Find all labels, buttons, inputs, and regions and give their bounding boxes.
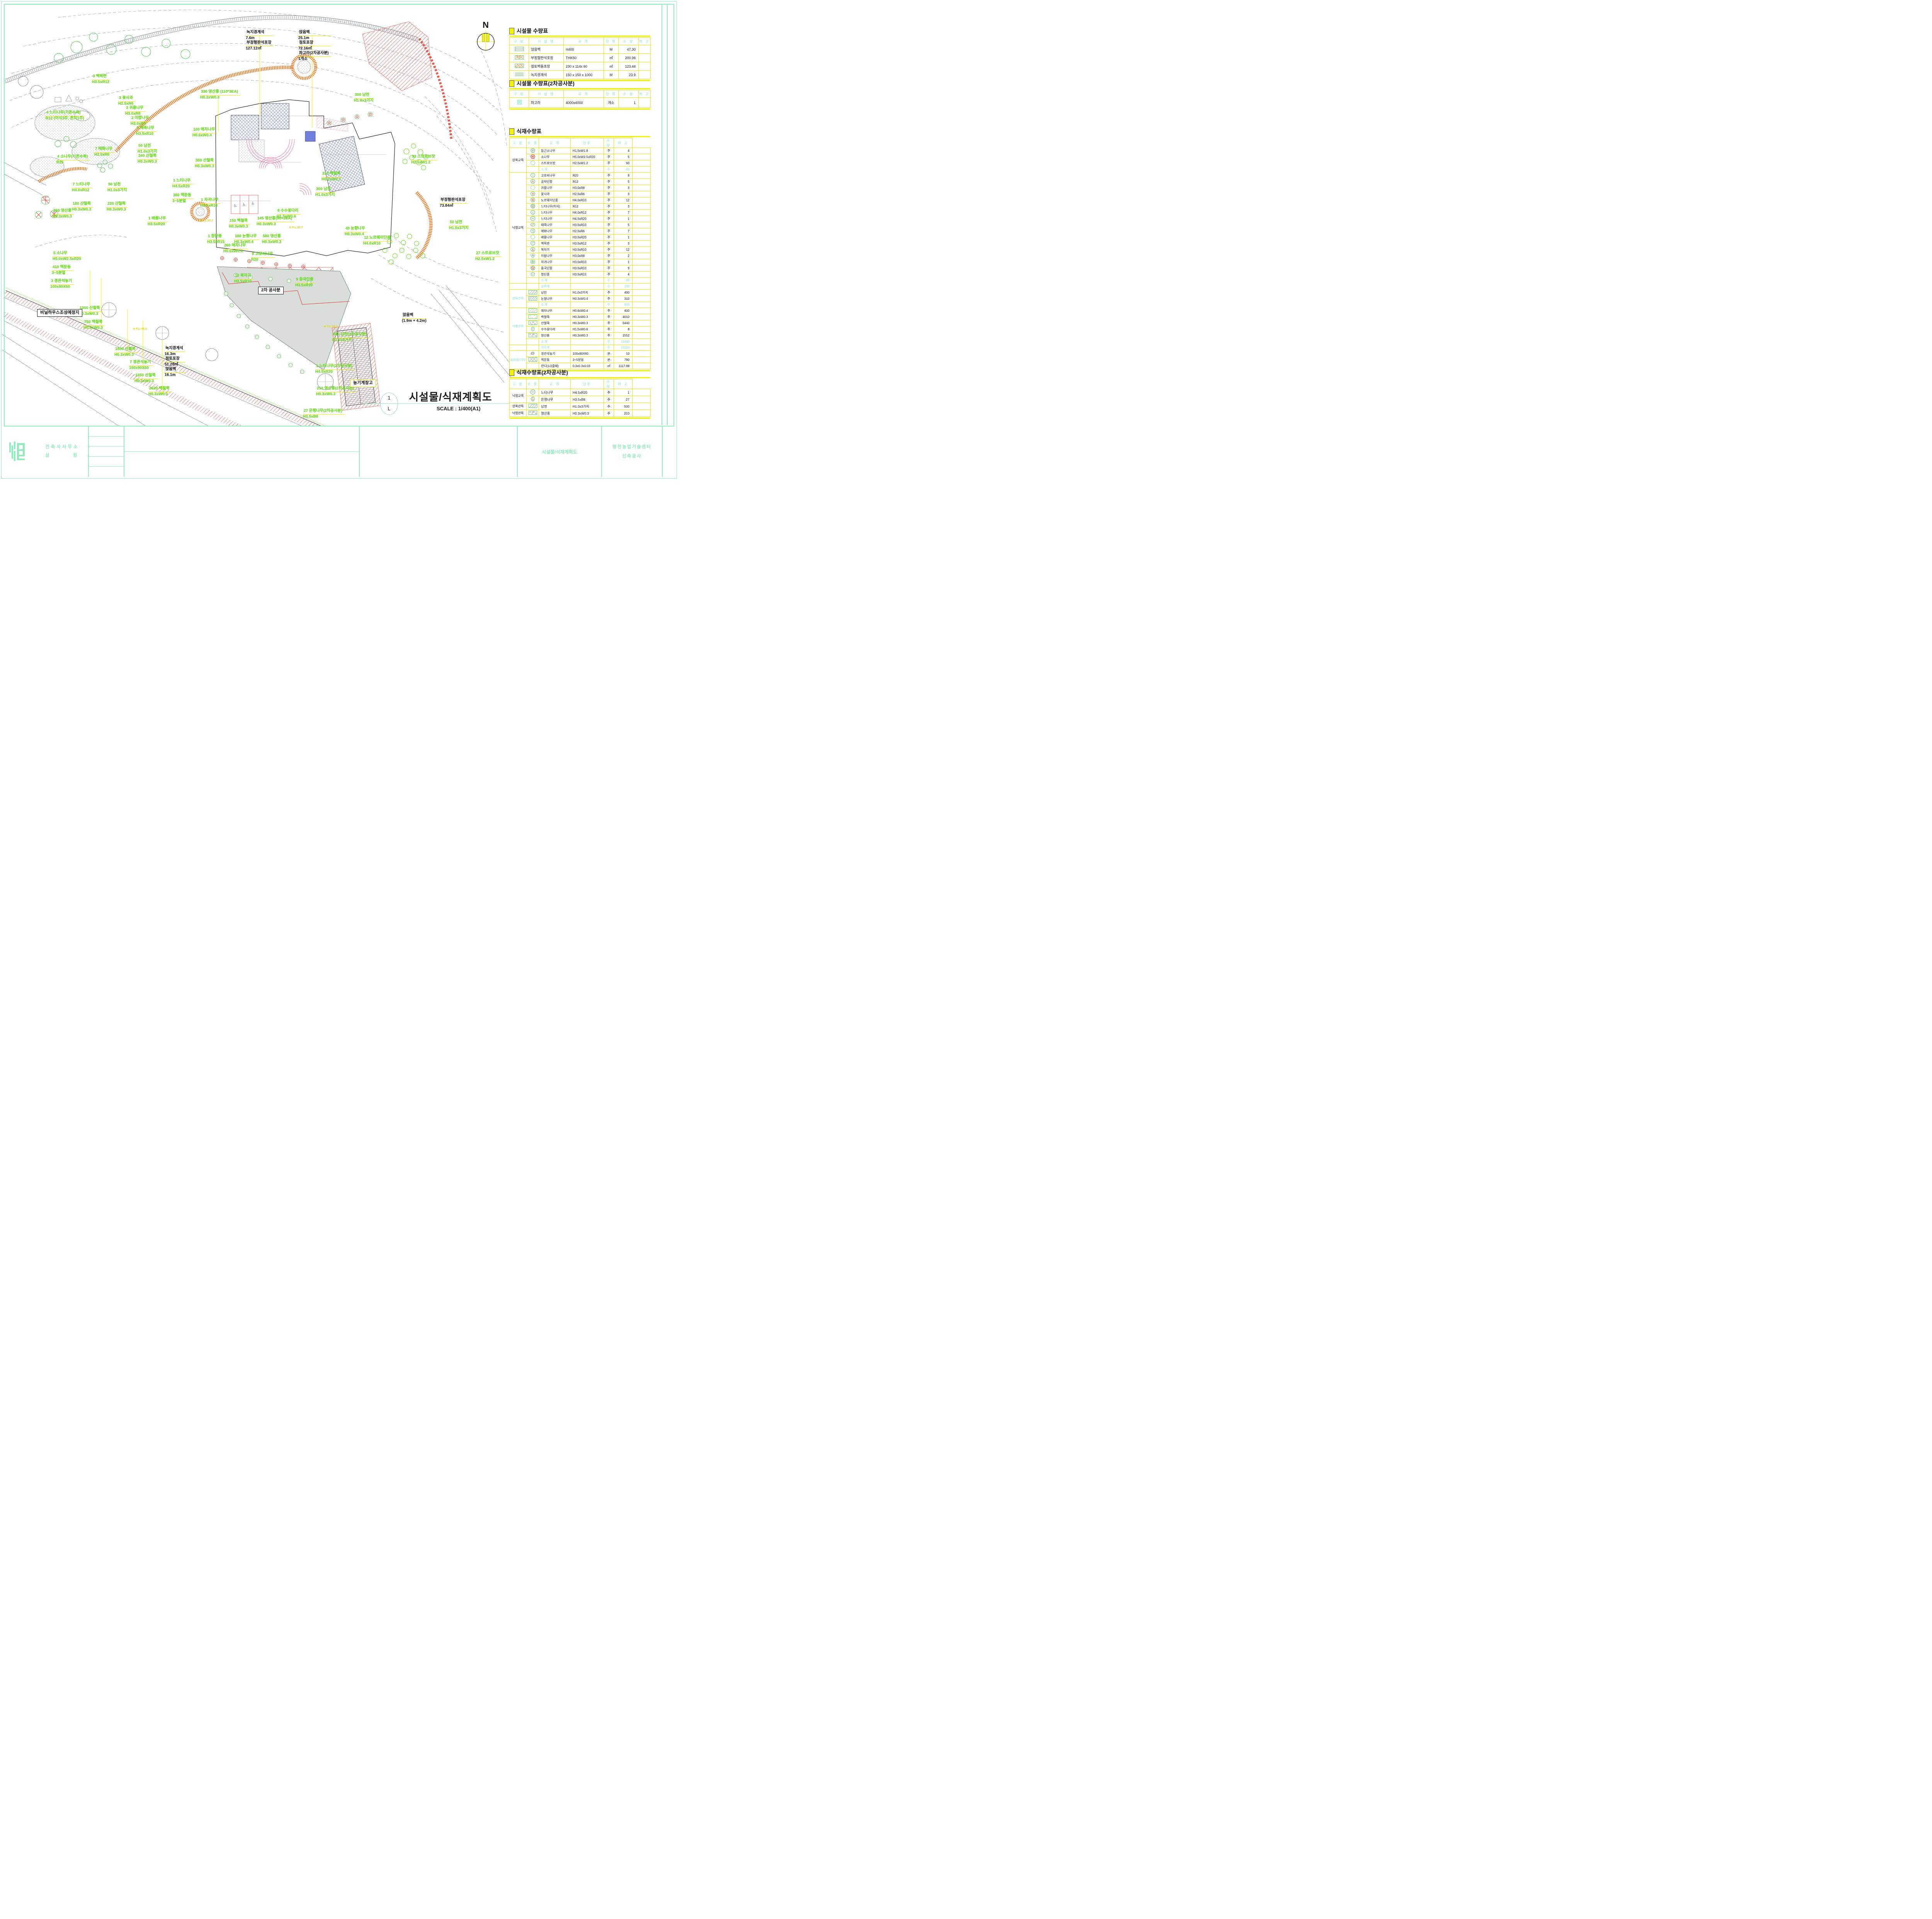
- table-row: 중국단풍H3.5xR10주9: [510, 265, 651, 271]
- table-row: 청단풍H3.5xR15주4: [510, 271, 651, 277]
- plant-label: 1350 산철쭉H0.3xW0.3: [134, 373, 158, 384]
- table-row: 백철쭉H0.3xW0.3주4010: [510, 314, 651, 320]
- table-row: 낙엽관목매자나무H0.6xW0.4주400: [510, 308, 651, 314]
- project-line2: 신축공사: [612, 452, 651, 461]
- table-row: 상록관목남천H1.0x3가지주490: [510, 289, 651, 296]
- plant-label: 앉음벽(1.9m + 4.2m): [402, 313, 427, 323]
- titleblock-project-name: 영천농업기술센터 신축공사: [601, 427, 662, 477]
- plant-label: 380 맥문동3~5분얼: [172, 193, 194, 204]
- notes-cell: [359, 427, 517, 477]
- plant-label: 9 중국단풍H3.5xR10: [295, 277, 316, 288]
- table-row: 때죽나무H3.5xR10주5: [510, 222, 651, 228]
- table-row: 교목계주155: [510, 284, 651, 290]
- plant-label: 3 경관석놓기100x90X60: [50, 279, 74, 289]
- plant-label: 300 산철쭉H0.3xW0.3: [195, 158, 216, 169]
- table-row: 점토벽돌포장230 x 114x 60㎡123.44: [510, 62, 651, 71]
- yellow-bullet-icon: [509, 28, 514, 34]
- yellow-bullet-icon: [509, 128, 514, 135]
- table-row: 낙엽교목느티나무H4.5xR20주1: [510, 389, 651, 396]
- plant-label: 410 맥문동3~5분얼: [52, 265, 73, 275]
- table-row: 소 계주11410: [510, 339, 651, 345]
- plant-label: 310 백철쭉H0.3xW0.3: [321, 172, 343, 182]
- table-row: 눈향나무H0.3xW0.4주310: [510, 296, 651, 302]
- plant-label: 1800 산철쭉H0.3xW0.3: [114, 347, 138, 357]
- planting-table-title: 식재수량표: [509, 127, 541, 135]
- plant-label: 5 소나무H5.0xW2.5xR20: [53, 251, 81, 262]
- plant-label: 7 느티나무H4.0xR12: [72, 182, 92, 193]
- plant-label: 220 산철쭉H0.3xW0.3: [107, 202, 128, 212]
- table-row: 영산홍H0.3xW0.3주1552: [510, 333, 651, 339]
- sheet-number: 1: [381, 393, 398, 403]
- planting-table: 구 분수 종규 격단위수 량비 고상록교목둥근소나무H1.5xW1.8주4소나무…: [509, 136, 650, 371]
- table-row: 소 계주69: [510, 167, 651, 173]
- table-row: 매화나무H2.5xR6주7: [510, 228, 651, 234]
- table-row: 산철쭉H0.3xW0.3주5440: [510, 320, 651, 326]
- table-row: 상록교목둥근소나무H1.5xW1.8주4: [510, 148, 651, 154]
- table-row: 초화류/기타경관석놓기100x90X60본10: [510, 351, 651, 357]
- plant-label: 40 눈향나무H0.3xW0.4: [345, 226, 367, 237]
- yellow-bullet-icon: [509, 80, 514, 87]
- facility2-table-title: 시설물 수량표(2차공사분): [509, 80, 575, 87]
- table-row: 부정형판석포장THK50㎡200.96: [510, 54, 651, 62]
- plant-label: 1 자귀나무H3.0xR10: [200, 198, 221, 208]
- table-row: 녹지경계석150 x 150 x 1000M23.9: [510, 71, 651, 79]
- table-row: 노르웨이단풍H4.0xR10주12: [510, 197, 651, 203]
- plant-label: 330 영산홍 (110*3EA)H0.3xW0.3: [200, 90, 240, 100]
- yellow-bullet-icon: [509, 369, 514, 376]
- plant-label: 240 산철쭉H0.3xW0.3: [138, 154, 159, 164]
- sheet-layer: L: [381, 403, 398, 414]
- table-row: 상록관목남천H1.0x3가지주500: [510, 403, 651, 410]
- table-row: 배롱나무H3.5xR20주1: [510, 234, 651, 240]
- plant-label: 5 때죽나무H3.5xR10: [136, 126, 156, 136]
- drawing-title: 시설물/식재계획도: [404, 389, 497, 404]
- facility-table: 구 분시 설 명규 격단 위수 량비 고앉음벽H400M47.30부정형판석포장…: [509, 36, 650, 81]
- plant-label: 12 복자기H3.5xR10: [234, 274, 253, 284]
- plant-label: 7 경관석놓기100x90X60: [129, 360, 153, 371]
- revision-cell: [124, 427, 359, 477]
- table-row: 느티나무H4.0xR12주7: [510, 209, 651, 216]
- table-row: 수수꽃다리H1.5xW0.6주8: [510, 326, 651, 333]
- plant-label: 300 남천H1.0x3가지: [354, 93, 374, 103]
- table-row: 낙엽교목고로쇠나무R20주8: [510, 172, 651, 178]
- plant-label: 8 고로쇠나무R20: [251, 252, 275, 262]
- table-row: 귀룽나무H3.0xR8주3: [510, 185, 651, 191]
- plant-label: 260 매자나무H0.6xW0.4: [223, 243, 248, 254]
- plant-label: 100 매자나무H0.6xW0.4: [192, 127, 217, 138]
- table-row: 소 계주86: [510, 277, 651, 284]
- plant-label: 27 스트로브잣H2.5xW1.2: [475, 251, 502, 262]
- level-marker: ⊕ F.L:57.7: [199, 219, 213, 222]
- table-row: 파고라4000x4000개소1: [510, 98, 651, 108]
- north-label: N: [475, 20, 497, 30]
- plant-label: 150 백철쭉H0.3xW0.3: [229, 219, 250, 229]
- plant-label: 210 영산홍(2차공사분)H0.3xW0.3: [316, 386, 356, 397]
- level-marker: ⊕ F.L:52.0: [324, 325, 338, 328]
- plant-label: 7 매화나무H2.5xR6: [94, 147, 115, 157]
- planting2-table: 구 분수 종규 격단위수 량비 고낙엽교목느티나무H4.5xR20주1은행나무H…: [509, 377, 650, 419]
- table-header-row: 구 분시 설 명규 격단 위수 량비 고: [510, 38, 651, 45]
- plant-label: 1 느티나무H4.5xR20: [172, 178, 193, 189]
- table-row: 꽃사과H2.5xR6주3: [510, 191, 651, 197]
- plant-label: 1 느티나무(2차공사분)H4.5xR20: [315, 364, 355, 374]
- plant-label: 300 남천H1.0x3가지: [315, 187, 335, 197]
- table-header-row: 구 분시 설 명규 격단 위수 량비 고: [510, 90, 651, 98]
- compass-icon: [476, 30, 496, 52]
- plant-label: 145 영산홍(90+2EA)H0.3xW0.3: [257, 216, 294, 227]
- level-marker: ⊕ F.L:57.7: [289, 226, 303, 229]
- table-row: 느티나무H4.5xR20주1: [510, 216, 651, 222]
- table-row: 백목련H3.5xR12주3: [510, 240, 651, 246]
- plant-label: 260 영산홍H0.3xW0.3: [53, 209, 74, 219]
- plant-label: 2 이팝나무H3.0xR8: [131, 116, 151, 126]
- plant-label: 27 은행나무(2차공사분)H3.5xB8: [303, 409, 345, 419]
- plan-boxed-label: 2차 공사분: [258, 287, 284, 294]
- table-row: 낙엽관목영산홍H0.3xW0.3주210: [510, 410, 651, 417]
- table-row: 소 계주800: [510, 302, 651, 308]
- facility2-table: 구 분시 설 명규 격단 위수 량비 고파고라4000x4000개소1: [509, 88, 650, 110]
- table-row: 소나무H5.0xW2.5xR20주5: [510, 154, 651, 160]
- table-row: 느티나무(이식)R12주3: [510, 203, 651, 209]
- plant-label: 500 남천(2차공사분)H1.0x3가지: [332, 332, 369, 343]
- right-margin-cell: [662, 427, 673, 477]
- table-row: 자귀나무H3.0xR10주1: [510, 259, 651, 265]
- drawing-scale: SCALE : 1/400(A1): [437, 406, 480, 411]
- table-header-row: 구 분수 종규 격단위수 량비 고: [510, 379, 651, 389]
- plant-label: 1 청단풍H3.5xR15: [207, 234, 224, 245]
- plant-label: 12 노르웨이단풍H4.0xR10: [363, 236, 393, 246]
- table-row: 관목계주12210: [510, 345, 651, 351]
- office-name-line1: 건축사사무소: [45, 445, 79, 449]
- plant-label: 580 영산홍H0.3xW0.3: [262, 234, 283, 245]
- signature-stack: [88, 427, 124, 477]
- planting2-table-title: 식재수량표(2차공사분): [509, 369, 568, 376]
- table-row: 이팝나무H3.0xR8주2: [510, 253, 651, 259]
- plan-boxed-label: 농기계창고: [350, 379, 376, 387]
- drawing-sheet: { "sheet": { "title": "시설물/식재계획도", "scal…: [0, 0, 678, 480]
- table-row: 복자기H3.5xR10주12: [510, 246, 651, 253]
- table-header-row: 구 분수 종규 격단위수 량비 고: [510, 138, 651, 148]
- plant-label: 180 산철쭉H0.3xW0.3: [72, 202, 93, 212]
- table-row: 맥문동3~5분얼본790: [510, 357, 651, 363]
- plan-boxed-label: 비닐하우스조성예정지: [37, 309, 82, 317]
- table-row: 은행나무H3.5xB8주27: [510, 396, 651, 403]
- plant-label: 750 백철쭉H0.3xW0.3: [83, 320, 105, 330]
- plant-label: 앉음벽25.1m점토포장72.16㎡파고라(2차공사분)1개소: [298, 30, 331, 61]
- plant-label: 녹지경계석7.6m부정형판석포장127.12㎡: [246, 30, 274, 51]
- plant-label: 90 남천H1.0x3가지: [107, 182, 127, 193]
- plant-label: 180 눈향나무H0.3xW0.4: [234, 234, 259, 245]
- plant-label: 4 소나무(기존수목)R25: [56, 155, 90, 165]
- table-row: 앉음벽H400M47.30: [510, 45, 651, 54]
- plant-label: 3 백목련H3.5xR12: [92, 74, 109, 85]
- table-row: 공작단풍R12주5: [510, 178, 651, 185]
- office-name-line2: 삼 원: [45, 453, 79, 458]
- table-row: 잔디(1/2줄떼)0.3x0.3x0.03㎡1117.88: [510, 363, 651, 369]
- north-arrow: N: [475, 20, 497, 54]
- plant-label: 3 귀룽나무H3.0xR8: [125, 106, 146, 116]
- table-row: 스트로브잣H2.5xW1.2주60: [510, 160, 651, 167]
- plant-label: 2620 백철쭉H0.3xW0.3: [148, 386, 172, 397]
- plant-label: 50 남천H1.0x3가지: [138, 144, 157, 154]
- facility-table-title: 시설물 수량표: [509, 27, 548, 35]
- plant-label: 33 스트로브잣H2.5xW1.2: [411, 155, 437, 165]
- plant-label: 50 남천H1.0x3가지: [449, 220, 469, 231]
- sheet-number-marker: 1 L: [380, 393, 398, 415]
- office-logo-icon: [9, 442, 26, 462]
- title-block: 건축사사무소 삼 원 시설물/식재계획도 영천농업기술센터 신축공사: [4, 426, 674, 476]
- project-line1: 영천농업기술센터: [612, 442, 651, 452]
- plant-label: 녹지경계석16.3m점토포장51.28㎡앉음벽16.1m: [165, 346, 185, 377]
- titleblock-drawing-name: 시설물/식재계획도: [517, 427, 601, 477]
- plant-label: 4 느티나무(기존수목)R12 (이식3주, 존치1주): [46, 110, 84, 121]
- plant-label: 부정형판석포장73.84㎡: [440, 198, 468, 208]
- plant-label: 3 꽃사과H2.5xR6: [118, 96, 135, 106]
- architect-office-cell: 건축사사무소 삼 원: [4, 427, 88, 477]
- plant-label: 1 배롱나무H3.5xR20: [148, 216, 168, 227]
- level-marker: ⊕ F.L:48.3: [133, 327, 147, 330]
